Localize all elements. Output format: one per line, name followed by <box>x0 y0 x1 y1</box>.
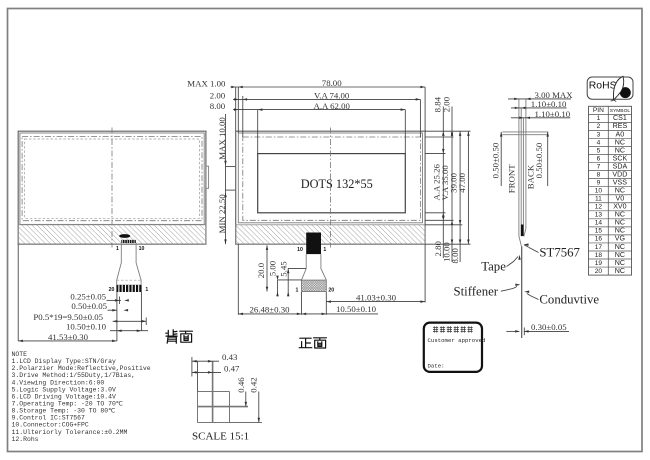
svg-text:10.50±0.10: 10.50±0.10 <box>66 322 107 332</box>
svg-text:Customer approved: Customer approved <box>428 337 486 344</box>
svg-text:NC: NC <box>615 267 625 275</box>
svg-text:NC: NC <box>615 211 625 219</box>
svg-text:NC: NC <box>615 146 625 154</box>
svg-text:47.00: 47.00 <box>457 172 467 192</box>
svg-text:Date:: Date: <box>428 363 445 370</box>
svg-text:8.00: 8.00 <box>450 248 460 264</box>
svg-text:NC: NC <box>615 219 625 227</box>
svg-text:MAX 1.00: MAX 1.00 <box>187 78 226 88</box>
svg-text:SCALE 15:1: SCALE 15:1 <box>192 431 249 443</box>
svg-text:6: 6 <box>597 155 601 162</box>
svg-text:8.00: 8.00 <box>210 101 226 111</box>
svg-text:2.00: 2.00 <box>210 91 226 101</box>
svg-text:1: 1 <box>323 247 326 253</box>
svg-text:1: 1 <box>597 115 601 122</box>
svg-text:2.Polarzier Mode:Reflective,Po: 2.Polarzier Mode:Reflective,Positive <box>12 365 151 372</box>
svg-text:BACK: BACK <box>526 164 536 189</box>
svg-text:VDD: VDD <box>612 170 627 178</box>
svg-text:0.43: 0.43 <box>222 352 238 362</box>
svg-text:FRONT: FRONT <box>506 164 516 193</box>
svg-text:A0: A0 <box>616 130 625 138</box>
svg-text:DOTS 132*55: DOTS 132*55 <box>301 177 373 191</box>
svg-text:4.Viewing Direction:6:00: 4.Viewing Direction:6:00 <box>12 379 105 386</box>
svg-text:V0: V0 <box>616 195 625 203</box>
svg-text:MAX 10.00: MAX 10.00 <box>217 117 227 160</box>
svg-text:41.03±0.30: 41.03±0.30 <box>356 292 397 302</box>
svg-text:NC: NC <box>615 259 625 267</box>
svg-text:PIN: PIN <box>593 107 604 114</box>
svg-text:0.50±0.50: 0.50±0.50 <box>534 142 544 178</box>
svg-text:2.00: 2.00 <box>442 96 452 112</box>
svg-text:RES: RES <box>613 122 628 130</box>
svg-text:0.30±0.05: 0.30±0.05 <box>531 322 567 332</box>
svg-text:8: 8 <box>597 171 601 178</box>
svg-text:NOTE: NOTE <box>12 351 28 358</box>
svg-text:20: 20 <box>109 287 115 293</box>
svg-text:SDA: SDA <box>613 162 628 170</box>
svg-text:10: 10 <box>297 247 303 253</box>
svg-text:4: 4 <box>597 139 601 146</box>
svg-text:ST7567: ST7567 <box>539 245 580 259</box>
svg-text:5.45: 5.45 <box>278 261 288 277</box>
svg-text:10: 10 <box>139 246 145 252</box>
svg-text:78.00: 78.00 <box>322 78 342 88</box>
svg-text:16: 16 <box>595 236 603 243</box>
svg-text:CS1: CS1 <box>613 114 627 122</box>
svg-text:20: 20 <box>595 268 603 275</box>
svg-text:RoHS: RoHS <box>589 80 617 91</box>
svg-text:26.48±0.30: 26.48±0.30 <box>249 305 290 315</box>
svg-text:Conduvtive: Conduvtive <box>539 293 599 307</box>
svg-text:6.LCD Driving Voltage:10.4V: 6.LCD Driving Voltage:10.4V <box>12 393 116 400</box>
svg-text:NC: NC <box>615 251 625 259</box>
svg-text:15: 15 <box>595 228 603 235</box>
svg-text:12.Rohs: 12.Rohs <box>12 436 39 443</box>
svg-text:5.00: 5.00 <box>268 260 278 276</box>
svg-text:2: 2 <box>597 123 601 130</box>
svg-text:NC: NC <box>615 138 625 146</box>
svg-text:1: 1 <box>296 287 299 293</box>
svg-text:10: 10 <box>595 188 603 195</box>
svg-text:1.10±0.10: 1.10±0.10 <box>531 99 567 109</box>
svg-text:5.Logic Supply Voltage:3.0V: 5.Logic Supply Voltage:3.0V <box>12 386 116 393</box>
svg-text:MIN 22.50: MIN 22.50 <box>217 194 227 234</box>
svg-text:SCK: SCK <box>613 154 628 162</box>
svg-text:NC: NC <box>615 243 625 251</box>
svg-text:Tape: Tape <box>481 260 506 274</box>
svg-text:0.47: 0.47 <box>224 363 240 373</box>
svg-text:9: 9 <box>597 179 601 186</box>
svg-text:7.Operating Temp: -20 TO 70℃: 7.Operating Temp: -20 TO 70℃ <box>12 400 124 407</box>
svg-text:VSS: VSS <box>613 178 627 186</box>
svg-text:V.A 74.00: V.A 74.00 <box>314 91 350 101</box>
svg-text:1.LCD Display Type:STN/Gray: 1.LCD Display Type:STN/Gray <box>12 358 116 365</box>
svg-text:NC: NC <box>615 187 625 195</box>
svg-text:1: 1 <box>116 246 119 252</box>
svg-text:14: 14 <box>595 220 603 227</box>
svg-text:10.Connector:COG+FPC: 10.Connector:COG+FPC <box>12 422 89 429</box>
svg-text:1.10±0.10: 1.10±0.10 <box>535 109 571 119</box>
svg-text:0.25±0.05: 0.25±0.05 <box>70 291 106 301</box>
svg-text:VG: VG <box>615 235 625 243</box>
svg-text:5: 5 <box>597 147 601 154</box>
svg-text:8.Storage Temp: -30 TO 80℃: 8.Storage Temp: -30 TO 80℃ <box>12 408 116 415</box>
svg-text:13: 13 <box>595 212 603 219</box>
svg-text:10.50±0.10: 10.50±0.10 <box>336 304 377 314</box>
svg-text:0.46: 0.46 <box>236 377 246 393</box>
svg-text:3: 3 <box>597 131 601 138</box>
svg-text:20: 20 <box>328 287 334 293</box>
svg-text:NC: NC <box>615 227 625 235</box>
svg-text:0.42: 0.42 <box>249 377 259 392</box>
svg-text:XV0: XV0 <box>613 203 626 211</box>
svg-text:18: 18 <box>595 252 603 259</box>
svg-text:20.0: 20.0 <box>256 262 266 278</box>
svg-text:41.53±0.30: 41.53±0.30 <box>48 332 89 342</box>
svg-text:11: 11 <box>595 196 602 203</box>
svg-text:3.Drive Method:1/55Duty,1/7Bia: 3.Drive Method:1/55Duty,1/7Bias, <box>12 372 136 379</box>
svg-text:9.Control IC:ST7567: 9.Control IC:ST7567 <box>12 415 86 422</box>
svg-text:19: 19 <box>595 260 603 267</box>
svg-text:A.A 62.00: A.A 62.00 <box>313 101 350 111</box>
svg-text:0.50±0.50: 0.50±0.50 <box>491 142 501 178</box>
svg-text:0.50±0.05: 0.50±0.05 <box>71 301 107 311</box>
svg-text:Stiffener: Stiffener <box>454 284 499 298</box>
svg-text:12: 12 <box>595 204 603 211</box>
svg-text:11.Ulteriorly Tolerance:±0.2MM: 11.Ulteriorly Tolerance:±0.2MM <box>12 429 128 436</box>
svg-text:7: 7 <box>597 163 601 170</box>
svg-text:1: 1 <box>145 287 148 293</box>
svg-text:17: 17 <box>595 244 603 251</box>
